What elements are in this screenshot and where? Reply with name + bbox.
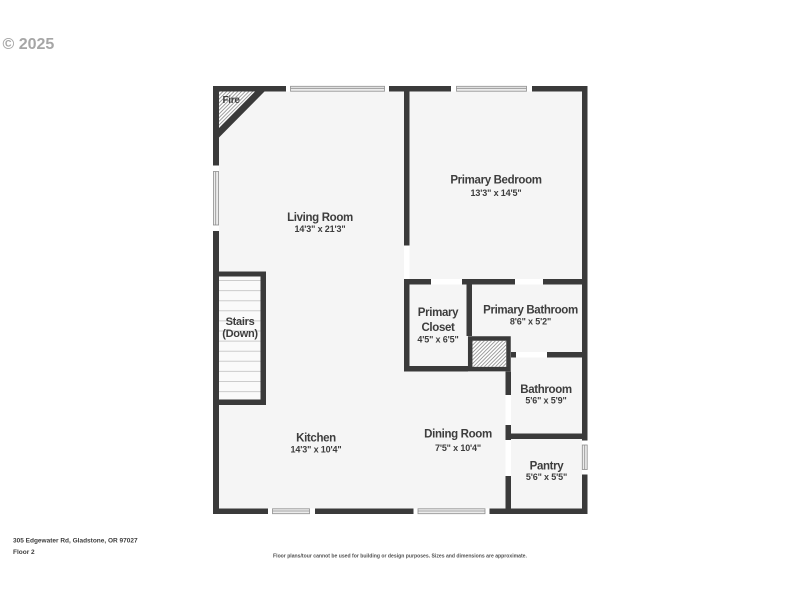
svg-text:Closet: Closet [421, 322, 455, 334]
svg-text:(Down): (Down) [222, 328, 258, 340]
svg-text:305 Edgewater Rd, Gladstone, O: 305 Edgewater Rd, Gladstone, OR 97027 [13, 538, 138, 545]
svg-text:Pantry: Pantry [530, 461, 565, 473]
svg-text:Stairs: Stairs [226, 316, 255, 328]
svg-text:14'3" x 10'4": 14'3" x 10'4" [291, 445, 342, 455]
svg-text:Primary Bathroom: Primary Bathroom [483, 305, 578, 317]
svg-text:7'5" x 10'4": 7'5" x 10'4" [435, 443, 481, 453]
svg-text:© 2025: © 2025 [3, 36, 55, 53]
svg-text:Bathroom: Bathroom [520, 384, 572, 396]
svg-text:Floor 2: Floor 2 [13, 549, 35, 556]
svg-text:Floor plans/tour cannot be use: Floor plans/tour cannot be used for buil… [273, 553, 527, 559]
svg-text:Fire: Fire [223, 95, 241, 106]
svg-text:8'6" x 5'2": 8'6" x 5'2" [510, 316, 551, 326]
svg-text:13'3" x 14'5": 13'3" x 14'5" [471, 188, 522, 198]
svg-text:5'6" x 5'5": 5'6" x 5'5" [526, 472, 567, 482]
svg-text:Primary: Primary [418, 307, 459, 319]
svg-text:5'6" x 5'9": 5'6" x 5'9" [525, 396, 566, 406]
svg-text:4'5" x 6'5": 4'5" x 6'5" [417, 335, 458, 345]
svg-text:Dining Room: Dining Room [424, 429, 492, 441]
svg-text:Living Room: Living Room [287, 212, 353, 224]
svg-text:14'3" x 21'3": 14'3" x 21'3" [295, 224, 346, 234]
svg-text:Primary Bedroom: Primary Bedroom [450, 175, 541, 187]
svg-text:Kitchen: Kitchen [296, 432, 336, 444]
